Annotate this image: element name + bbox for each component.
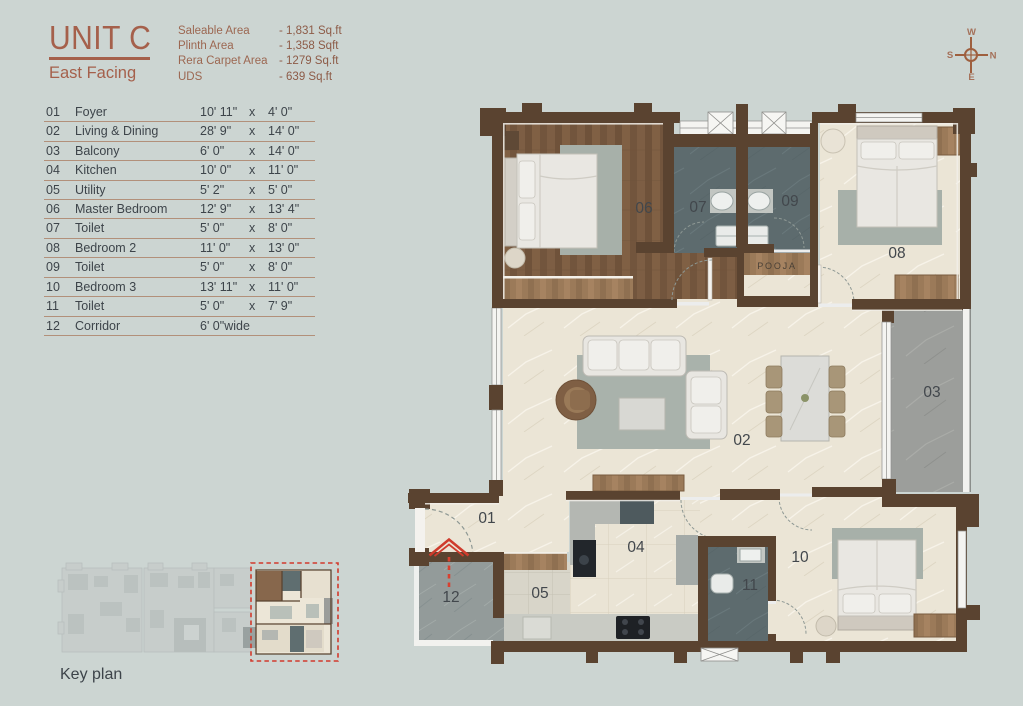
svg-text:06: 06 bbox=[635, 200, 652, 217]
svg-text:05: 05 bbox=[531, 585, 548, 602]
svg-text:02: 02 bbox=[733, 432, 750, 449]
svg-text:11: 11 bbox=[742, 577, 758, 594]
svg-text:03: 03 bbox=[923, 384, 940, 401]
svg-text:09: 09 bbox=[781, 193, 798, 210]
svg-text:POOJA: POOJA bbox=[757, 261, 797, 271]
svg-text:S: S bbox=[947, 50, 953, 61]
svg-text:W: W bbox=[967, 27, 976, 38]
svg-text:12: 12 bbox=[442, 589, 459, 606]
svg-text:08: 08 bbox=[888, 245, 905, 262]
svg-text:07: 07 bbox=[689, 199, 706, 216]
svg-text:04: 04 bbox=[627, 539, 645, 556]
svg-text:01: 01 bbox=[478, 510, 495, 527]
svg-text:E: E bbox=[968, 72, 974, 83]
svg-text:10: 10 bbox=[791, 549, 809, 566]
svg-text:N: N bbox=[990, 51, 997, 62]
